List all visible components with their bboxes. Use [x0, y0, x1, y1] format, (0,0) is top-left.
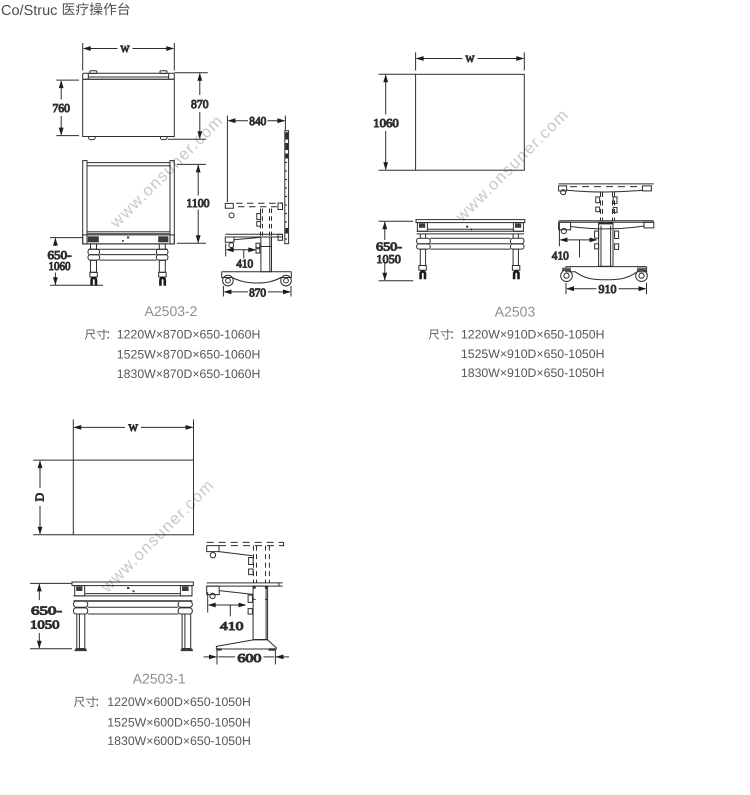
- svg-text:870: 870: [191, 97, 209, 111]
- svg-text:W: W: [121, 45, 130, 55]
- svg-text:Co/Struc: Co/Struc: [1, 3, 57, 19]
- svg-text:1100: 1100: [186, 196, 209, 210]
- svg-text:1050: 1050: [376, 252, 401, 266]
- svg-text:1830W×600D×650-1050H: 1830W×600D×650-1050H: [107, 734, 251, 748]
- svg-text:W: W: [466, 55, 475, 65]
- svg-text:A2503: A2503: [495, 304, 536, 320]
- svg-text:D: D: [33, 493, 47, 502]
- svg-text:410: 410: [220, 619, 244, 633]
- svg-text:1220W×870D×650-1060H: 1220W×870D×650-1060H: [117, 328, 261, 342]
- svg-text:840: 840: [249, 114, 266, 128]
- svg-text:1525W×600D×650-1050H: 1525W×600D×650-1050H: [107, 715, 251, 729]
- svg-text:1220W×910D×650-1050H: 1220W×910D×650-1050H: [461, 328, 605, 342]
- svg-text:1525W×870D×650-1060H: 1525W×870D×650-1060H: [117, 347, 261, 361]
- svg-text:A2503-1: A2503-1: [133, 671, 186, 687]
- svg-text:650-: 650-: [31, 604, 62, 618]
- svg-text:A2503-2: A2503-2: [145, 303, 198, 319]
- svg-text:600: 600: [237, 651, 261, 665]
- svg-text:1830W×870D×650-1060H: 1830W×870D×650-1060H: [117, 367, 261, 381]
- svg-text:1060: 1060: [373, 116, 399, 130]
- svg-text:870: 870: [249, 285, 266, 299]
- svg-text:1220W×600D×650-1050H: 1220W×600D×650-1050H: [107, 695, 251, 709]
- svg-text:760: 760: [52, 101, 70, 115]
- svg-text:410: 410: [236, 256, 253, 270]
- svg-text:1050: 1050: [30, 618, 60, 632]
- svg-text:1060: 1060: [49, 259, 71, 273]
- svg-text:W: W: [128, 423, 138, 434]
- svg-text:1525W×910D×650-1050H: 1525W×910D×650-1050H: [461, 347, 605, 361]
- svg-text:910: 910: [599, 282, 617, 296]
- svg-text:1830W×910D×650-1050H: 1830W×910D×650-1050H: [461, 366, 605, 380]
- svg-text:410: 410: [552, 249, 569, 263]
